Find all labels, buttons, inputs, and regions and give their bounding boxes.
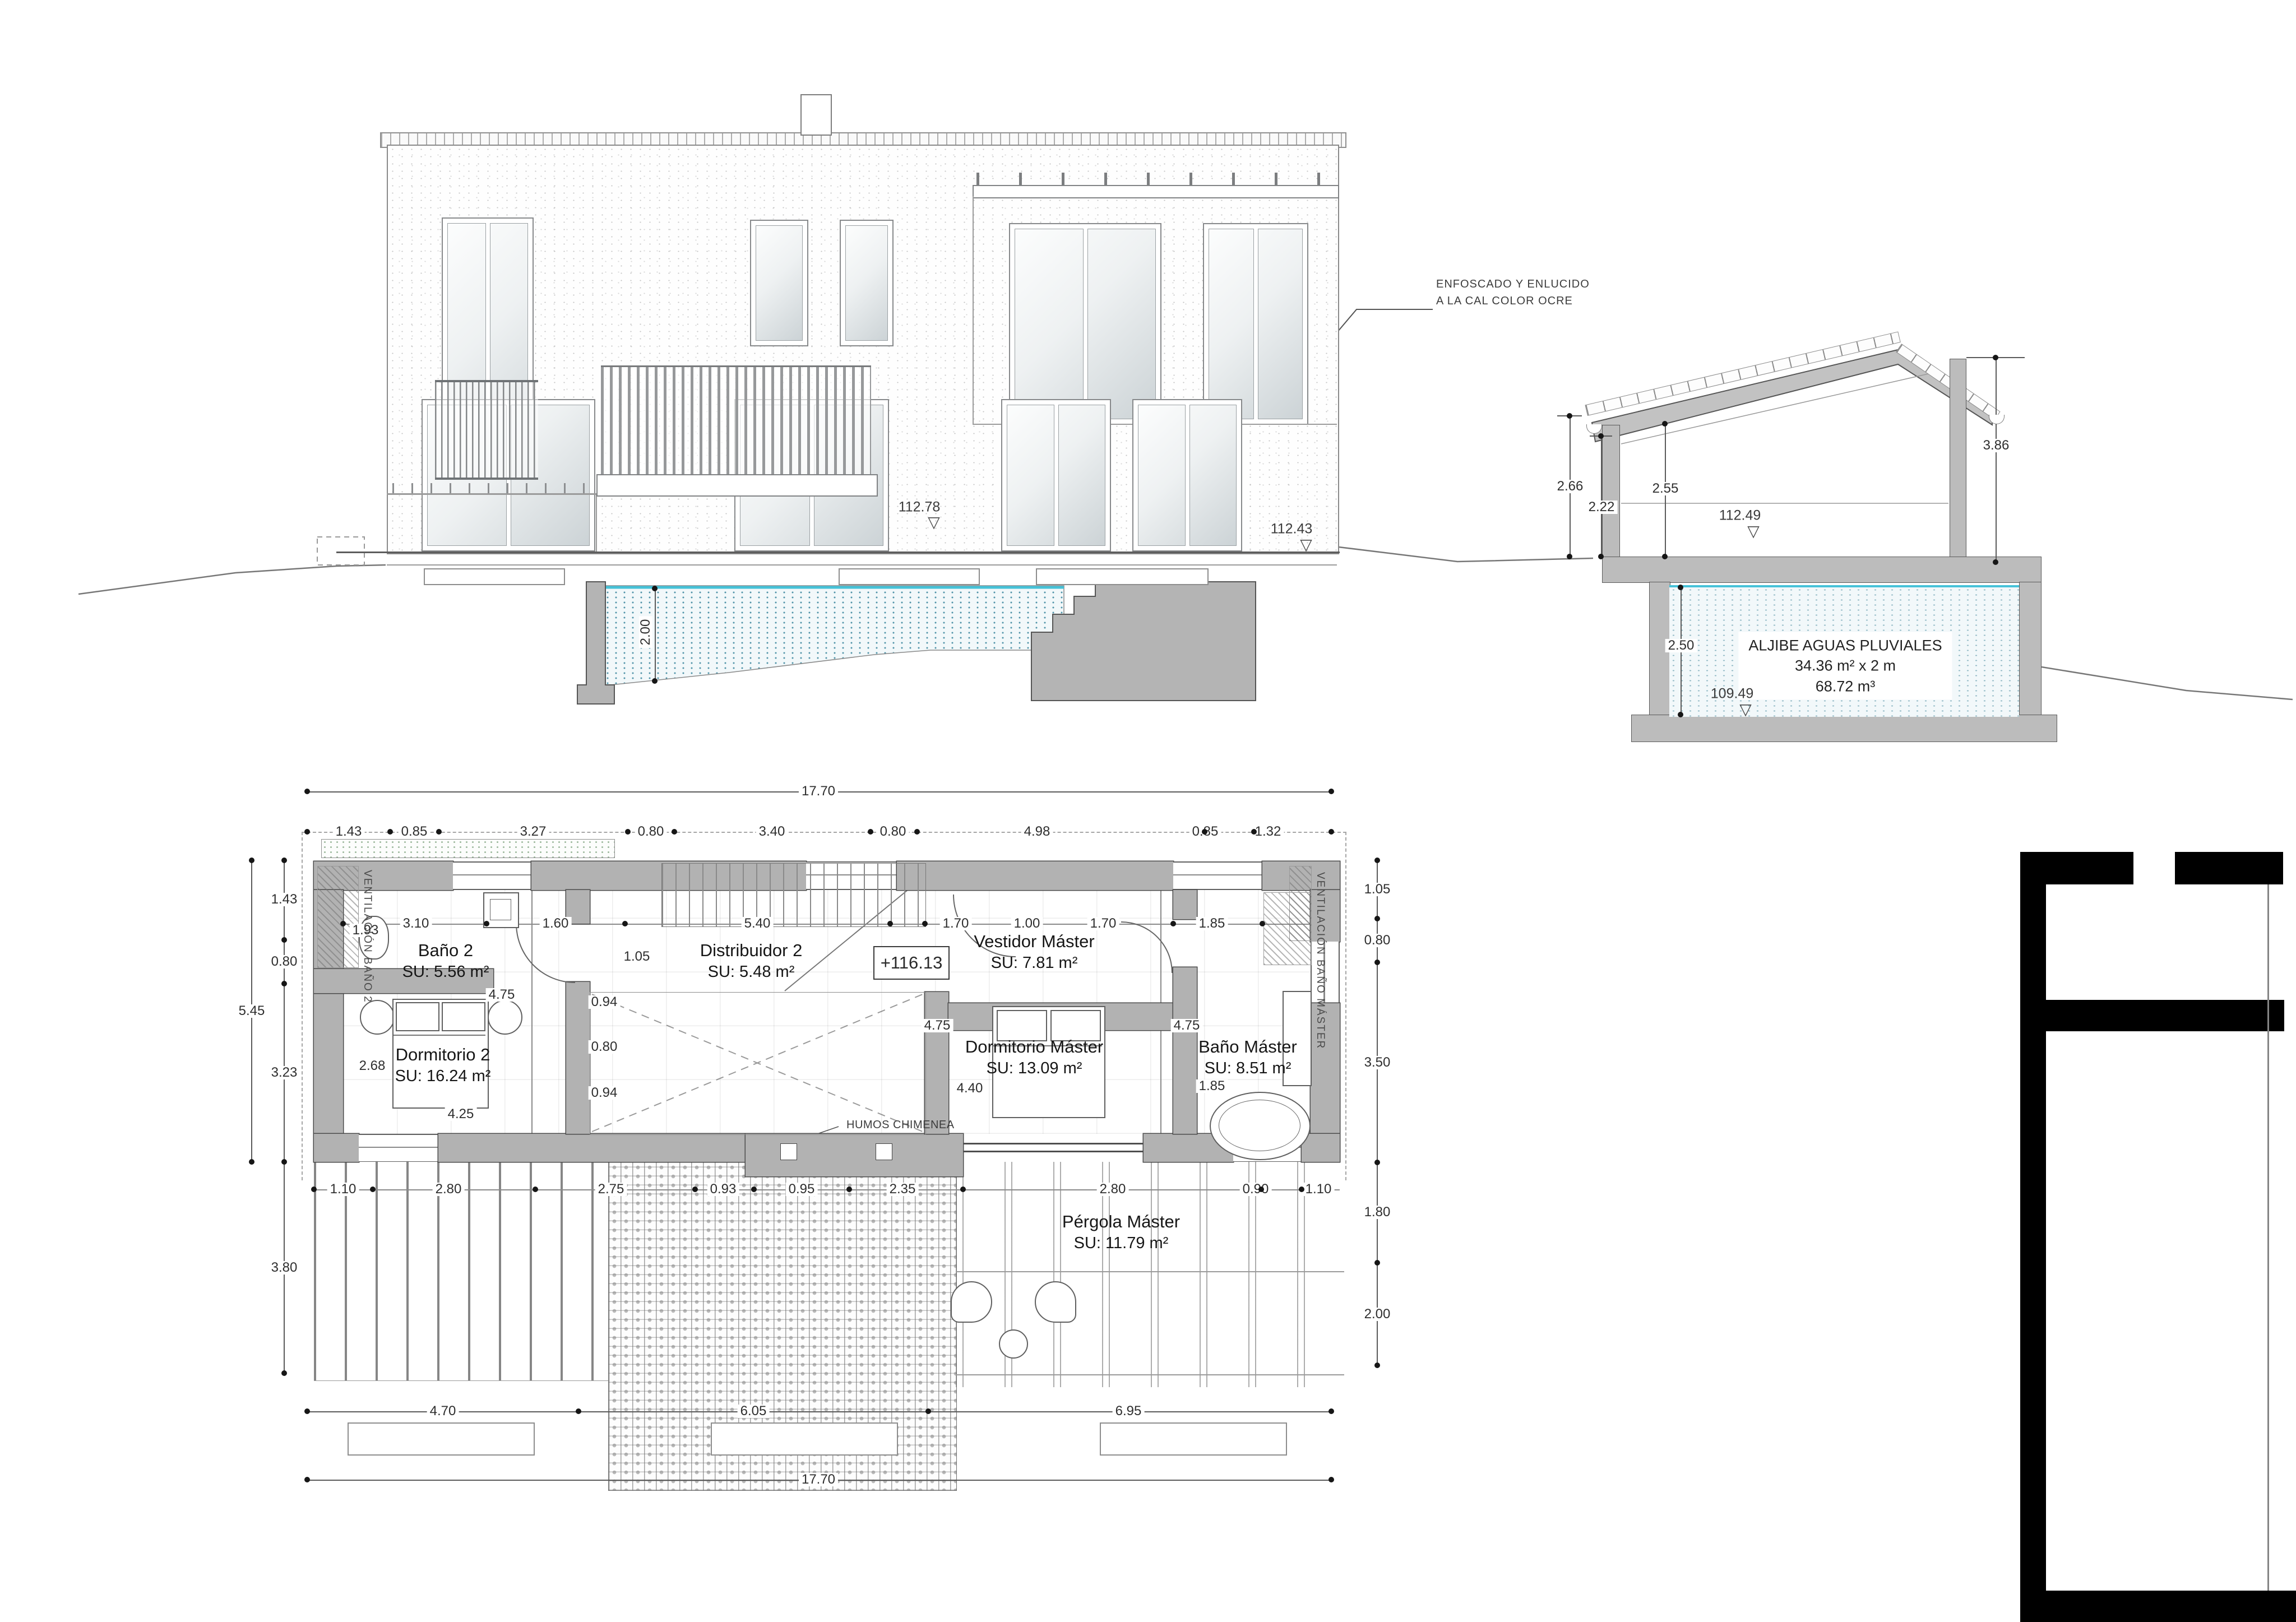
room-name: Baño Máster: [1198, 1036, 1297, 1058]
vent-shaft-bano2: [317, 866, 359, 968]
dim-dot: [1374, 916, 1380, 921]
dim-dot: [1251, 829, 1257, 835]
pergola-line: [956, 1374, 1344, 1375]
dim-dot: [1328, 1477, 1334, 1482]
nightstand: [360, 1000, 395, 1035]
dim-left-total: 5.45: [236, 1004, 268, 1018]
dim: 2.35: [887, 1183, 919, 1196]
stair-treads: [661, 863, 926, 927]
dim: 1.60: [540, 917, 572, 930]
plan-level-box: +116.13: [873, 946, 950, 980]
dim: 3.27: [517, 825, 549, 838]
dim-dot: [1328, 829, 1334, 835]
dim-dot: [622, 921, 628, 926]
section-dim-386: 3.86: [1980, 439, 2012, 452]
dim-dot: [1374, 858, 1380, 863]
fragment-wall-middle: [2020, 1000, 2284, 1031]
dim: 6.05: [738, 1405, 770, 1418]
dim: 2.00: [1362, 1308, 1394, 1321]
dim: 0.80: [877, 825, 909, 838]
dim: 1.80: [1362, 1206, 1394, 1219]
elevation-window-lower-3: [1001, 399, 1111, 552]
section-dim-266: 2.66: [1554, 480, 1586, 493]
dim: 0.94: [589, 1086, 621, 1100]
dim: 1.70: [1087, 917, 1119, 930]
section-floor-slab: [1602, 557, 2042, 583]
cistern-title: ALJIBE AGUAS PLUVIALES: [1748, 635, 1942, 655]
dim-dot: [340, 921, 346, 926]
level-112-43: 112.43: [1271, 521, 1313, 537]
room-area: SU: 5.48 m²: [700, 962, 803, 983]
room-label-dormitorio-master: Dormitorio Máster SU: 13.09 m²: [965, 1036, 1103, 1079]
note-line-2: A LA CAL COLOR OCRE: [1436, 293, 1590, 309]
room-name: Dormitorio Máster: [965, 1036, 1103, 1058]
dim-left-lower: 3.80: [269, 1261, 300, 1275]
terrain-line-left: [78, 565, 386, 594]
dim: 0.85: [399, 825, 430, 838]
side-table: [999, 1329, 1028, 1359]
pool-steps: [1031, 582, 1256, 701]
room-label-pergola-master: Pérgola Máster SU: 11.79 m²: [1062, 1211, 1180, 1254]
plan-north-planter: [321, 839, 615, 858]
dim: 1.10: [327, 1183, 359, 1196]
dim-dot: [868, 829, 873, 835]
dim-dot: [1993, 355, 1998, 360]
terrain-line-mid: [1339, 547, 1593, 562]
dim-dot: [887, 921, 893, 926]
dim: 3.10: [400, 917, 432, 930]
dim: 4.75: [922, 1019, 953, 1032]
dim-dot: [1374, 960, 1380, 965]
chimney-flue: [876, 1143, 892, 1160]
plan-window: [453, 861, 531, 890]
plan-window: [359, 1134, 438, 1162]
chair: [951, 1281, 992, 1323]
room-area: SU: 8.51 m²: [1198, 1058, 1297, 1079]
room-area: SU: 13.09 m²: [965, 1058, 1103, 1079]
ground-line: [336, 552, 1340, 553]
dim: 0.93: [707, 1183, 739, 1196]
dim-dot: [249, 1159, 254, 1165]
elevation-window-small-2: [840, 220, 894, 346]
left-cornice-line: [387, 493, 603, 495]
cistern-bottom-slab: [1631, 715, 2057, 742]
room-label-bano-master: Baño Máster SU: 8.51 m²: [1198, 1036, 1297, 1079]
dim: 0.80: [269, 955, 300, 968]
dim-dot: [1374, 1260, 1380, 1266]
room-label-dormitorio2: Dormitorio 2 SU: 16.24 m²: [395, 1044, 491, 1087]
shower-master: [1263, 892, 1312, 965]
wall: [314, 1134, 359, 1162]
dim-dot: [1598, 433, 1604, 439]
dim-dot: [1299, 1187, 1304, 1192]
dim-dot: [1374, 1160, 1380, 1165]
room-name: Dormitorio 2: [395, 1044, 491, 1066]
elevation-window-terrace-1: [1009, 223, 1161, 425]
dim-dot: [370, 1187, 376, 1192]
level-triangle: ▽: [1300, 537, 1312, 553]
terrain-line-right: [2042, 667, 2293, 699]
dim-dot: [533, 1187, 538, 1192]
pool-depth-dim: 2.00: [639, 617, 652, 648]
dim-dot: [281, 1370, 287, 1376]
elevation-window-small-1: [750, 220, 808, 346]
dim: 1.43: [333, 825, 365, 838]
room-label-bano2: Baño 2 SU: 5.56 m²: [402, 939, 489, 983]
chimney-mass: [746, 1134, 963, 1176]
dim-dot: [1598, 554, 1604, 559]
dim: 4.75: [486, 988, 518, 1002]
dim-dot: [1678, 712, 1683, 717]
dim-dot: [484, 921, 489, 926]
wall: [438, 1134, 746, 1162]
dim-dot: [281, 1159, 287, 1165]
balcony-fascia: [596, 474, 878, 497]
wall: [897, 861, 1173, 890]
fragment-wall-top-b: [2175, 852, 2283, 884]
elevation-chimney: [800, 94, 832, 136]
dim: 2.80: [433, 1183, 465, 1196]
dim-dot: [1258, 1187, 1264, 1192]
dim-dot: [304, 789, 310, 794]
elevation-juliet-railing: [435, 380, 538, 480]
room-name: Vestidor Máster: [974, 930, 1094, 953]
dim-dot: [1170, 921, 1176, 926]
bottom-pad: [711, 1422, 898, 1456]
room-label-distribuidor2: Distribuidor 2 SU: 5.48 m²: [700, 939, 803, 983]
dim-dot: [1567, 413, 1572, 419]
dim: 1.00: [1011, 917, 1043, 930]
cistern-volume: 68.72 m³: [1748, 676, 1942, 696]
dim-dot: [1374, 1363, 1380, 1368]
dim: 1.85: [1196, 1079, 1228, 1093]
cistern-wall-right: [2019, 582, 2042, 716]
balcony-slat-railing: [601, 365, 871, 477]
dim: 1.05: [621, 950, 653, 963]
dim: 4.70: [427, 1405, 459, 1418]
terrace-recess-edge: [973, 196, 974, 424]
dim-dot: [922, 921, 928, 926]
dim-dot: [652, 678, 658, 684]
dim-dot: [436, 829, 442, 835]
dim: 4.75: [1171, 1019, 1203, 1032]
dim: 3.23: [269, 1066, 300, 1079]
dim-dot: [672, 829, 677, 835]
level-triangle: ▽: [1747, 523, 1760, 539]
dim: 1.32: [1252, 825, 1284, 838]
dim-dot: [387, 829, 393, 835]
section-wall-right: [1950, 359, 1966, 558]
room-area: SU: 5.56 m²: [402, 962, 489, 983]
dim-dot: [304, 1408, 310, 1414]
vent-bano2-label: VENTILACIÓN BAÑO 2: [361, 870, 373, 976]
dim: 1.10: [1303, 1183, 1335, 1196]
plan-sliding-door: [963, 1134, 1144, 1162]
dim-dot: [304, 1477, 310, 1482]
terrain-dashed-box: [317, 537, 364, 565]
partition: [1173, 890, 1197, 919]
dim: 3.40: [756, 825, 788, 838]
dim-dot: [281, 981, 287, 986]
double-height-void: [590, 992, 926, 1135]
elevation-window-terrace-2: [1203, 223, 1308, 425]
dim: 2.68: [357, 1059, 388, 1073]
bottom-pad: [1100, 1422, 1287, 1456]
level-triangle: ▽: [928, 515, 940, 530]
facade-joint-line: [596, 493, 597, 552]
room-label-vestidor: Vestidor Máster SU: 7.81 m²: [974, 930, 1094, 974]
vent-master-label: VENTILACIÓN BAÑO MÁSTER: [1314, 872, 1326, 1074]
room-area: SU: 7.81 m²: [974, 953, 1094, 974]
dim-dot: [960, 1187, 966, 1192]
dim-dot: [576, 1408, 581, 1414]
dim: 5.40: [742, 917, 774, 930]
facade-material-note: ENFOSCADO Y ENLUCIDO A LA CAL COLOR OCRE: [1436, 276, 1590, 309]
ground-planter-2: [839, 568, 980, 585]
dim-dot: [1567, 554, 1572, 559]
dim: 0.95: [786, 1183, 818, 1196]
room-area: SU: 16.24 m²: [395, 1066, 491, 1087]
nightstand: [488, 1000, 522, 1035]
dim: 1.85: [1196, 917, 1228, 930]
fragment-wall-top-a: [2020, 852, 2133, 884]
dim-dot: [1662, 554, 1668, 559]
dim-dot: [1260, 921, 1265, 926]
dim: 1.05: [1362, 883, 1394, 896]
dim-dot: [1328, 789, 1334, 794]
room-name: Pérgola Máster: [1062, 1211, 1180, 1233]
level-triangle: ▽: [1739, 702, 1752, 717]
plan-window: [1173, 861, 1262, 890]
dim-dot: [692, 1187, 698, 1192]
dim-dot: [914, 829, 920, 835]
fragment-inner-line: [2267, 884, 2269, 1591]
bottom-pad: [348, 1422, 535, 1456]
dim-dot: [652, 586, 658, 591]
level-109-49: 109.49: [1711, 686, 1753, 702]
plinth-line: [387, 564, 1337, 566]
dim: 4.98: [1021, 825, 1053, 838]
pool-depth-dimline: [655, 588, 656, 681]
dim-dot: [281, 937, 287, 943]
dim: 2.75: [595, 1183, 627, 1196]
elevation-window-lower-4: [1132, 399, 1242, 552]
dim-overall-bottom: 17.70: [799, 1473, 838, 1486]
cistern-size: 34.36 m² x 2 m: [1748, 656, 1942, 676]
dim: 1.70: [940, 917, 972, 930]
cistern-label: ALJIBE AGUAS PLUVIALES 34.36 m² x 2 m 68…: [1738, 632, 1952, 699]
section-wall-left: [1602, 425, 1620, 558]
elevation-pergola-beam: [973, 185, 1339, 198]
dim-dot: [846, 1187, 852, 1192]
elevation-pergola-posts: [976, 173, 1335, 185]
room-name: Baño 2: [402, 939, 489, 962]
dim-dot: [249, 858, 254, 863]
partition: [925, 992, 948, 1134]
fragment-wall-bottom: [2020, 1591, 2296, 1622]
drawing-sheet: ENFOSCADO Y ENLUCIDO A LA CAL COLOR OCRE…: [0, 0, 2296, 1622]
chair: [1035, 1281, 1076, 1323]
dim-dot: [304, 829, 310, 835]
dim-dot: [1202, 829, 1207, 835]
dim-dot: [1662, 421, 1668, 427]
pool-water: [604, 586, 1064, 685]
dim-dot: [751, 1187, 757, 1192]
dim: 4.25: [445, 1107, 477, 1121]
dim-dot: [1993, 559, 1998, 565]
dim-dot: [311, 1187, 317, 1192]
pergola-line: [956, 1271, 1344, 1272]
partition: [1173, 967, 1197, 1134]
room-area: SU: 11.79 m²: [1062, 1233, 1180, 1254]
dim-dot: [925, 1408, 931, 1414]
dim-dot: [1678, 585, 1683, 590]
dim: 3.50: [1362, 1056, 1394, 1069]
dim-overall-top: 17.70: [799, 785, 838, 798]
chimney-flue: [780, 1143, 797, 1160]
cistern-depth-dim: 2.50: [1665, 639, 1697, 652]
dim-dot: [625, 829, 631, 835]
humos-chimenea-note: HUMOS CHIMENEA: [846, 1116, 955, 1133]
ground-planter-3: [1036, 568, 1209, 585]
dim: 0.80: [1362, 934, 1394, 947]
dim-dot: [281, 858, 287, 863]
level-112-49: 112.49: [1719, 508, 1761, 524]
note-line-1: ENFOSCADO Y ENLUCIDO: [1436, 276, 1590, 293]
section-dim-222: 2.22: [1586, 500, 1618, 514]
left-cornice-posts: [392, 483, 600, 493]
dim: 0.80: [635, 825, 667, 838]
fragment-wall-left: [2020, 852, 2046, 1622]
dim: 4.40: [954, 1082, 986, 1095]
ground-planter-1: [424, 568, 565, 585]
bathtub-master: [1210, 1092, 1311, 1160]
section-dim-255: 2.55: [1650, 482, 1682, 495]
room-name: Distribuidor 2: [700, 939, 803, 962]
dim: 0.80: [589, 1040, 621, 1054]
dim: 6.95: [1113, 1405, 1145, 1418]
dim: 1.43: [269, 893, 300, 906]
dim: 2.80: [1097, 1183, 1129, 1196]
partition: [566, 982, 590, 1134]
dim-dot: [1328, 1408, 1334, 1414]
dim: 0.90: [1240, 1183, 1272, 1196]
dim: 0.94: [589, 995, 621, 1009]
plan-level-value: +116.13: [881, 953, 943, 973]
